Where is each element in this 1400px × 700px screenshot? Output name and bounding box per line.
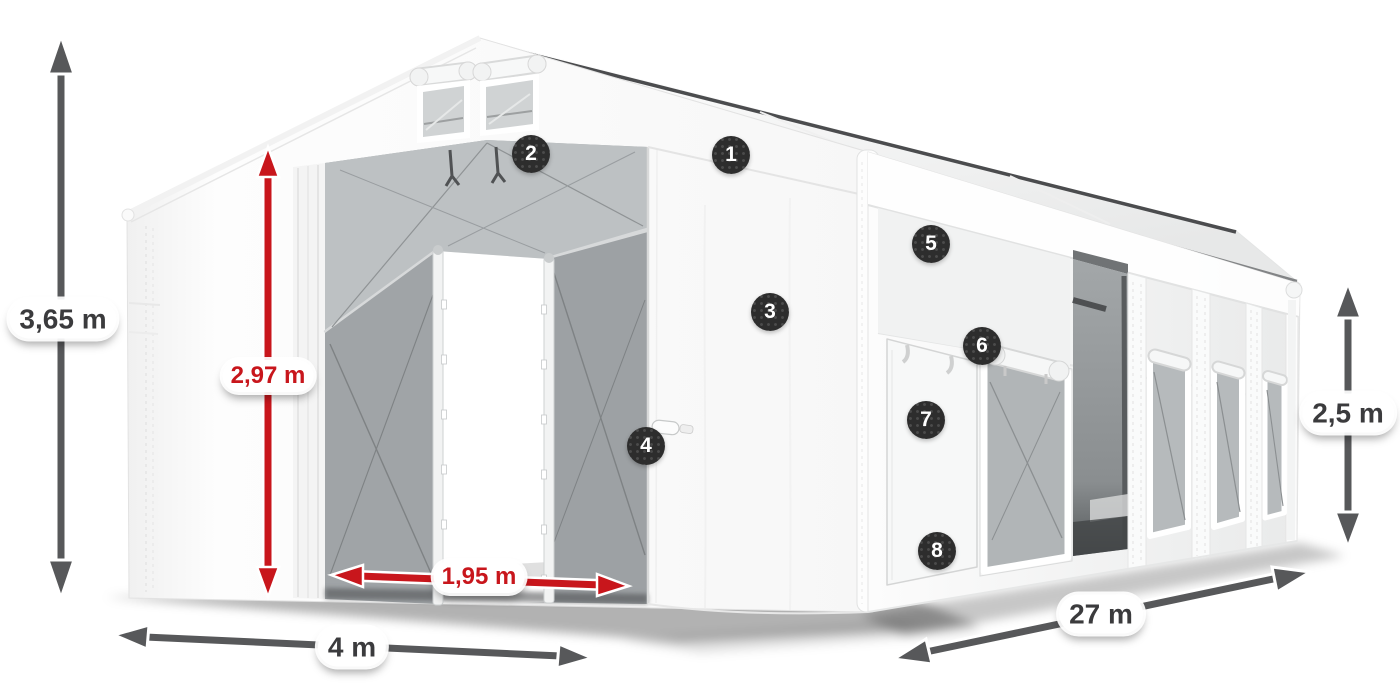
feature-marker-3: 3 — [751, 293, 789, 331]
dimension-label-side-height: 2,5 m — [1302, 394, 1394, 433]
feature-marker-8: 8 — [918, 532, 956, 570]
dimension-label-length: 27 m — [1059, 595, 1143, 634]
dimension-label-inner-height: 2,97 m — [223, 360, 314, 392]
dimension-label-front-width: 4 m — [318, 628, 386, 667]
feature-marker-6: 6 — [963, 327, 1001, 365]
tent-illustration — [0, 0, 1400, 700]
dimension-label-total-height: 3,65 m — [9, 300, 116, 339]
feature-marker-7: 7 — [907, 401, 945, 439]
feature-marker-2: 2 — [512, 135, 550, 173]
feature-marker-5: 5 — [912, 225, 950, 263]
dimension-label-door-width: 1,95 m — [434, 561, 525, 593]
tent-diagram-stage: 3,65 m 2,97 m 1,95 m 4 m 27 m 2,5 m 1 2 … — [0, 0, 1400, 700]
front-opening-interior — [325, 140, 648, 605]
feature-marker-1: 1 — [712, 136, 750, 174]
feature-marker-4: 4 — [627, 427, 665, 465]
